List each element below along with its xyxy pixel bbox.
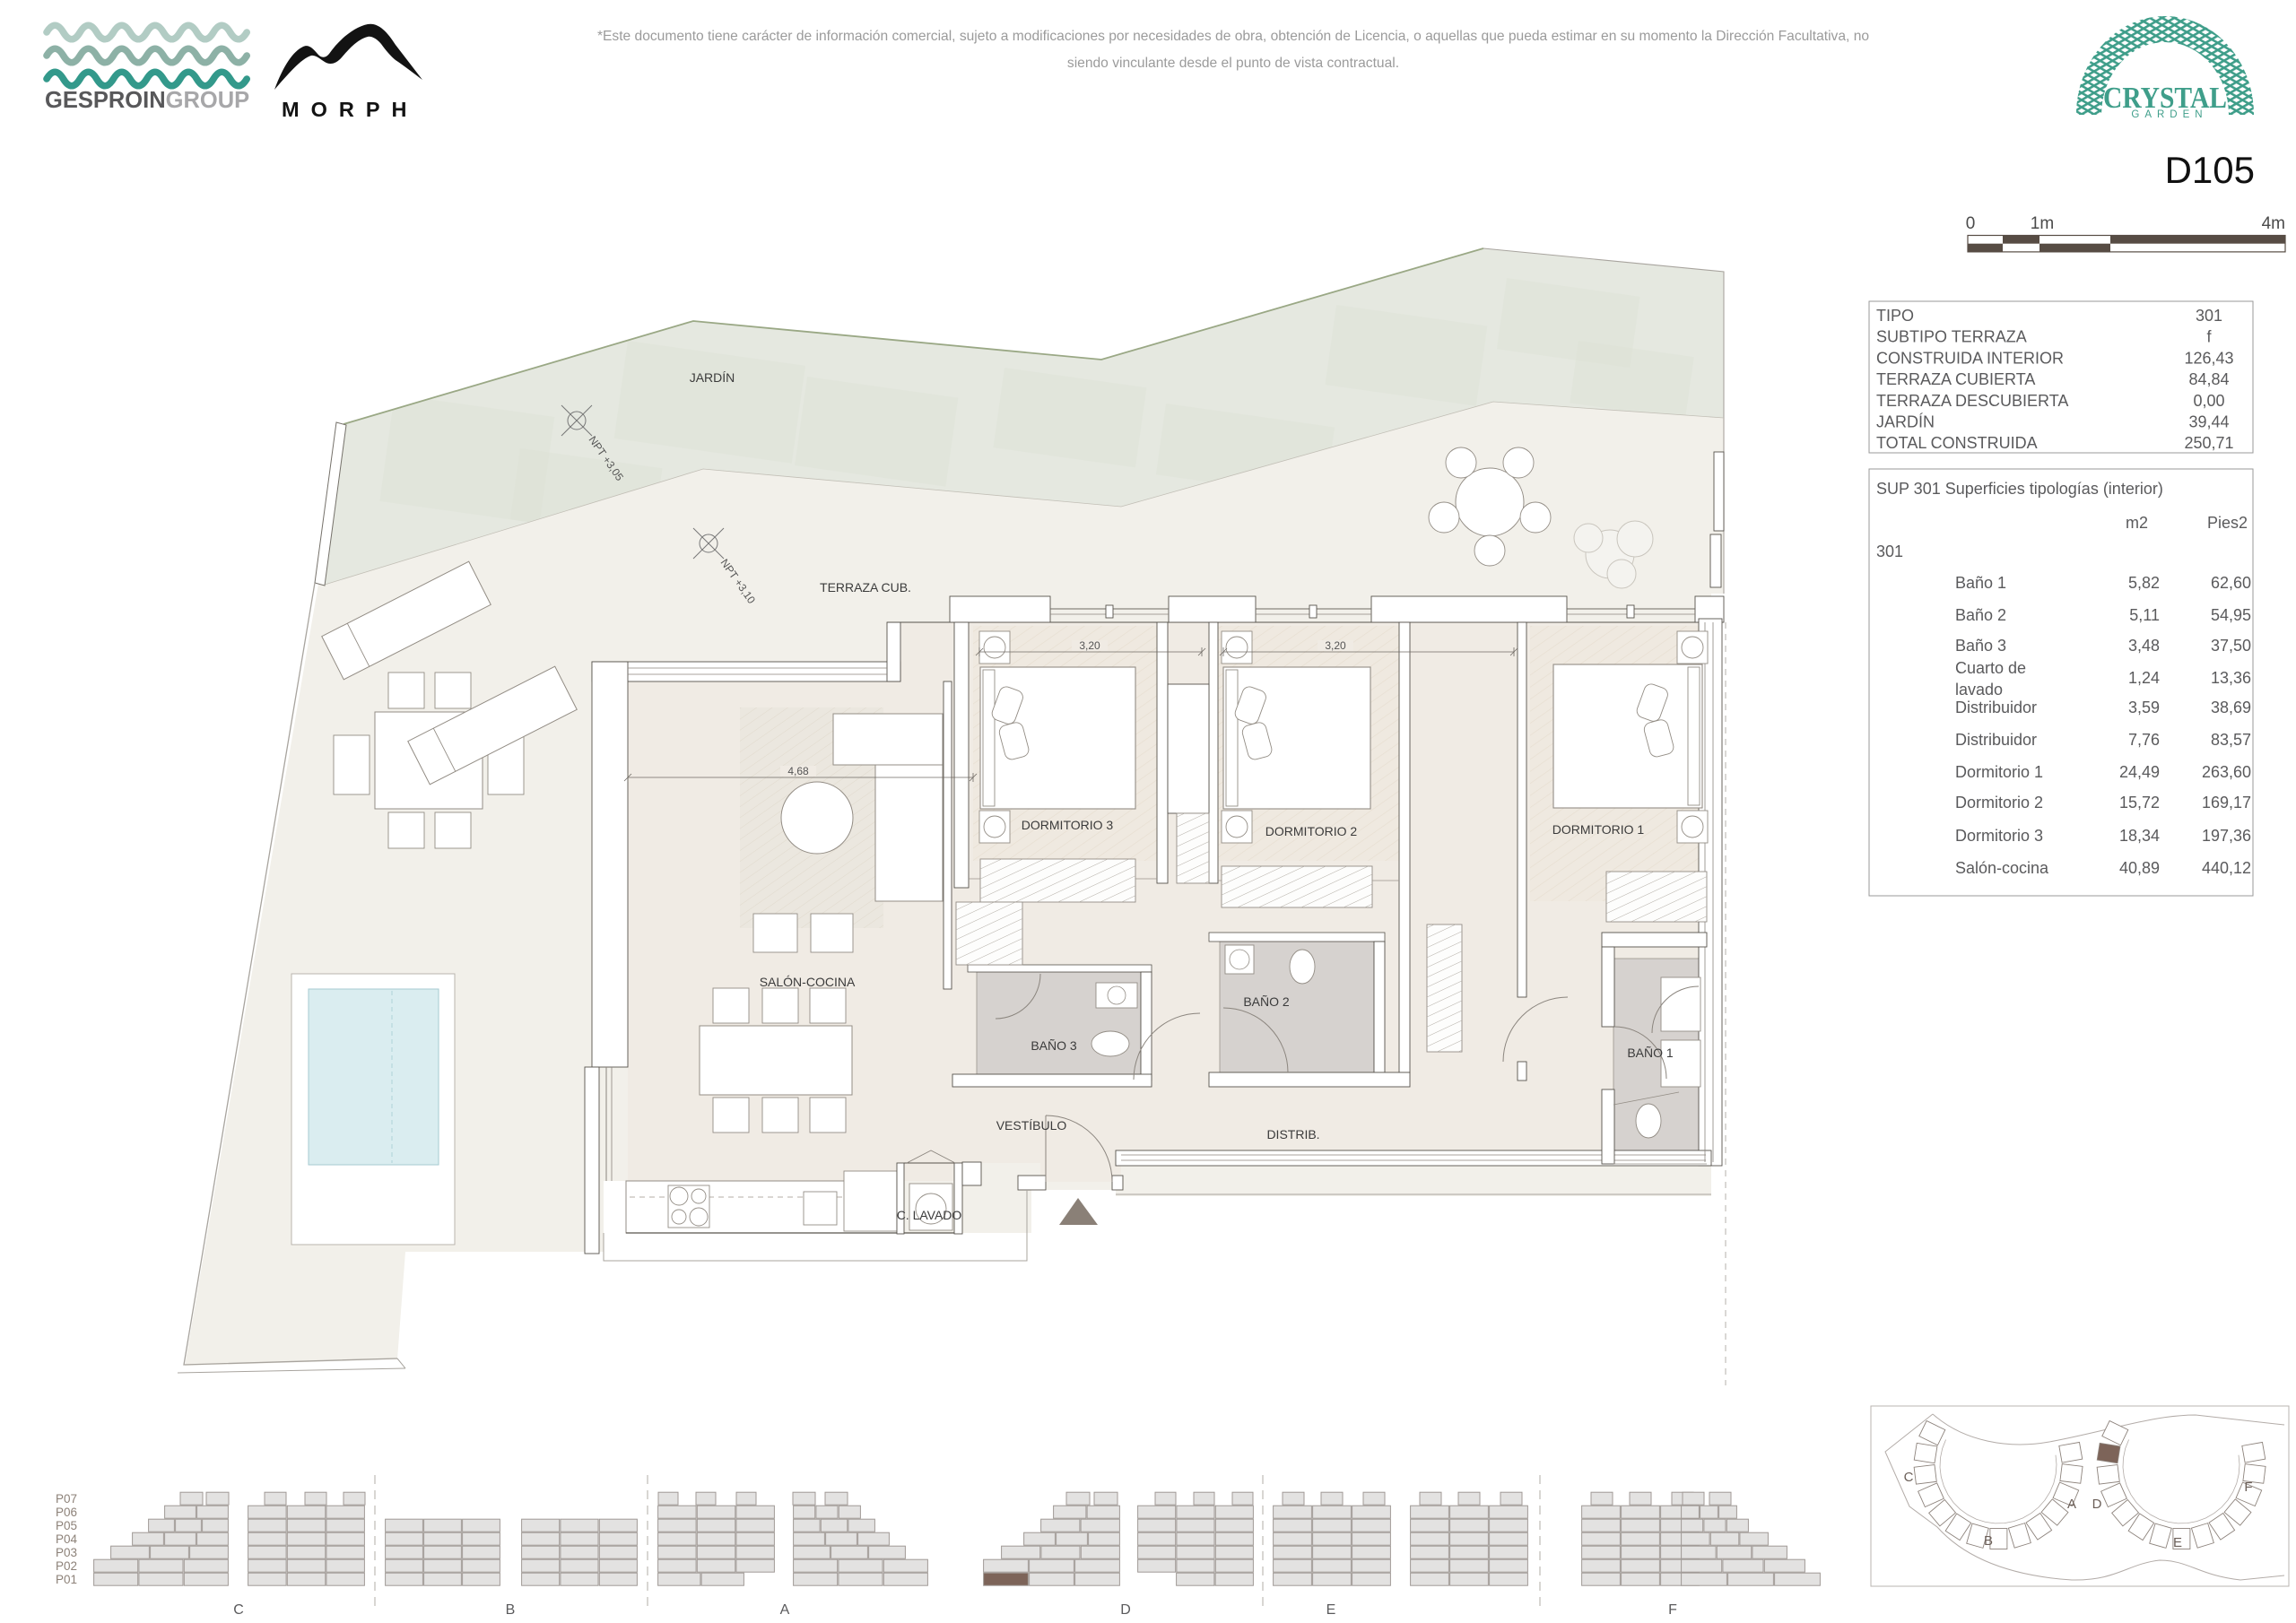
svg-text:3,48: 3,48 — [2128, 637, 2160, 655]
svg-text:P07: P07 — [56, 1492, 77, 1506]
svg-text:GESPROINGROUP: GESPROINGROUP — [45, 88, 249, 113]
svg-text:440,12: 440,12 — [2202, 859, 2251, 877]
svg-text:301: 301 — [2196, 307, 2222, 325]
svg-text:C: C — [1904, 1470, 1914, 1485]
svg-text:13,36: 13,36 — [2211, 669, 2251, 687]
svg-text:P05: P05 — [56, 1519, 77, 1532]
svg-text:F: F — [2244, 1480, 2252, 1495]
svg-text:B: B — [1984, 1533, 1993, 1549]
svg-text:DORMITORIO 3: DORMITORIO 3 — [1022, 818, 1114, 832]
svg-text:Pies2: Pies2 — [2207, 514, 2248, 532]
svg-text:D: D — [2092, 1497, 2102, 1512]
svg-text:62,60: 62,60 — [2211, 574, 2251, 592]
svg-text:37,50: 37,50 — [2211, 637, 2251, 655]
svg-text:BAÑO 3: BAÑO 3 — [1031, 1038, 1077, 1053]
svg-text:TIPO: TIPO — [1876, 307, 1914, 325]
svg-text:301: 301 — [1876, 542, 1903, 560]
svg-text:Baño 3: Baño 3 — [1955, 637, 2006, 655]
svg-text:24,49: 24,49 — [2119, 763, 2160, 781]
svg-text:CONSTRUIDA INTERIOR: CONSTRUIDA INTERIOR — [1876, 349, 2064, 367]
svg-text:P04: P04 — [56, 1532, 78, 1546]
svg-text:197,36: 197,36 — [2202, 827, 2251, 845]
svg-text:lavado: lavado — [1955, 681, 2003, 699]
svg-text:3,59: 3,59 — [2128, 699, 2160, 716]
svg-text:SUP 301 Superficies tipologías: SUP 301 Superficies tipologías (interior… — [1876, 480, 2163, 498]
svg-text:D: D — [1120, 1602, 1131, 1618]
svg-text:A: A — [2067, 1497, 2076, 1512]
svg-text:5,11: 5,11 — [2129, 606, 2160, 624]
svg-text:250,71: 250,71 — [2184, 434, 2233, 452]
svg-text:4,68: 4,68 — [787, 765, 809, 777]
svg-text:38,69: 38,69 — [2211, 699, 2251, 716]
svg-text:Salón-cocina: Salón-cocina — [1955, 859, 2049, 877]
svg-text:SALÓN-COCINA: SALÓN-COCINA — [760, 975, 856, 989]
svg-text:54,95: 54,95 — [2211, 606, 2251, 624]
svg-text:18,34: 18,34 — [2119, 827, 2160, 845]
svg-text:7,76: 7,76 — [2128, 731, 2160, 749]
svg-text:Dormitorio 1: Dormitorio 1 — [1955, 763, 2043, 781]
svg-text:TERRAZA CUBIERTA: TERRAZA CUBIERTA — [1876, 370, 2035, 388]
svg-text:DISTRIB.: DISTRIB. — [1266, 1127, 1319, 1141]
svg-text:TOTAL CONSTRUIDA: TOTAL CONSTRUIDA — [1876, 434, 2038, 452]
svg-text:5,82: 5,82 — [2128, 574, 2160, 592]
svg-text:TERRAZA CUB.: TERRAZA CUB. — [820, 580, 911, 595]
svg-text:126,43: 126,43 — [2184, 349, 2233, 367]
svg-text:15,72: 15,72 — [2119, 794, 2160, 811]
svg-text:Baño 1: Baño 1 — [1955, 574, 2006, 592]
svg-text:P02: P02 — [56, 1559, 77, 1573]
svg-text:JARDÍN: JARDÍN — [690, 370, 735, 385]
svg-text:BAÑO 1: BAÑO 1 — [1627, 1046, 1674, 1060]
svg-text:GARDEN: GARDEN — [2131, 109, 2207, 120]
svg-text:0,00: 0,00 — [2193, 392, 2224, 410]
svg-text:*Este documento tiene carácter: *Este documento tiene carácter de inform… — [597, 29, 1869, 44]
svg-text:169,17: 169,17 — [2202, 794, 2251, 811]
svg-text:B: B — [506, 1602, 516, 1618]
svg-text:E: E — [2173, 1535, 2182, 1550]
svg-text:Distribuidor: Distribuidor — [1955, 731, 2037, 749]
svg-text:E: E — [1326, 1602, 1336, 1618]
svg-text:84,84: 84,84 — [2188, 370, 2229, 388]
svg-text:siendo vinculante desde el pun: siendo vinculante desde el punto de vist… — [1067, 56, 1399, 71]
svg-text:1m: 1m — [2031, 214, 2054, 233]
svg-text:1,24: 1,24 — [2128, 669, 2160, 687]
svg-text:40,89: 40,89 — [2119, 859, 2160, 877]
svg-text:MORPH: MORPH — [282, 98, 418, 121]
svg-text:f: f — [2206, 328, 2212, 346]
svg-text:BAÑO 2: BAÑO 2 — [1243, 994, 1290, 1009]
svg-text:A: A — [780, 1602, 790, 1618]
svg-text:DORMITORIO 2: DORMITORIO 2 — [1265, 824, 1358, 838]
svg-text:P03: P03 — [56, 1546, 77, 1559]
svg-text:Cuarto de: Cuarto de — [1955, 659, 2026, 677]
svg-text:3,20: 3,20 — [1325, 639, 1346, 652]
svg-text:Baño 2: Baño 2 — [1955, 606, 2006, 624]
svg-text:Distribuidor: Distribuidor — [1955, 699, 2037, 716]
svg-text:0: 0 — [1966, 214, 1976, 233]
svg-text:4m: 4m — [2262, 214, 2285, 233]
svg-text:P01: P01 — [56, 1573, 77, 1586]
svg-text:83,57: 83,57 — [2211, 731, 2251, 749]
svg-text:F: F — [1668, 1602, 1677, 1618]
svg-text:VESTÍBULO: VESTÍBULO — [996, 1118, 1067, 1133]
svg-text:P06: P06 — [56, 1506, 77, 1519]
svg-text:m2: m2 — [2126, 514, 2148, 532]
svg-text:3,20: 3,20 — [1079, 639, 1100, 652]
svg-text:C: C — [233, 1602, 244, 1618]
svg-text:Dormitorio 2: Dormitorio 2 — [1955, 794, 2043, 811]
svg-text:39,44: 39,44 — [2188, 413, 2229, 431]
svg-text:DORMITORIO 1: DORMITORIO 1 — [1552, 822, 1645, 837]
svg-text:C. LAVADO: C. LAVADO — [897, 1208, 962, 1222]
svg-text:JARDÍN: JARDÍN — [1876, 413, 1935, 431]
svg-text:263,60: 263,60 — [2202, 763, 2251, 781]
svg-text:D105: D105 — [2165, 149, 2255, 191]
svg-text:Dormitorio 3: Dormitorio 3 — [1955, 827, 2043, 845]
svg-text:SUBTIPO TERRAZA: SUBTIPO TERRAZA — [1876, 328, 2027, 346]
svg-text:TERRAZA DESCUBIERTA: TERRAZA DESCUBIERTA — [1876, 392, 2068, 410]
